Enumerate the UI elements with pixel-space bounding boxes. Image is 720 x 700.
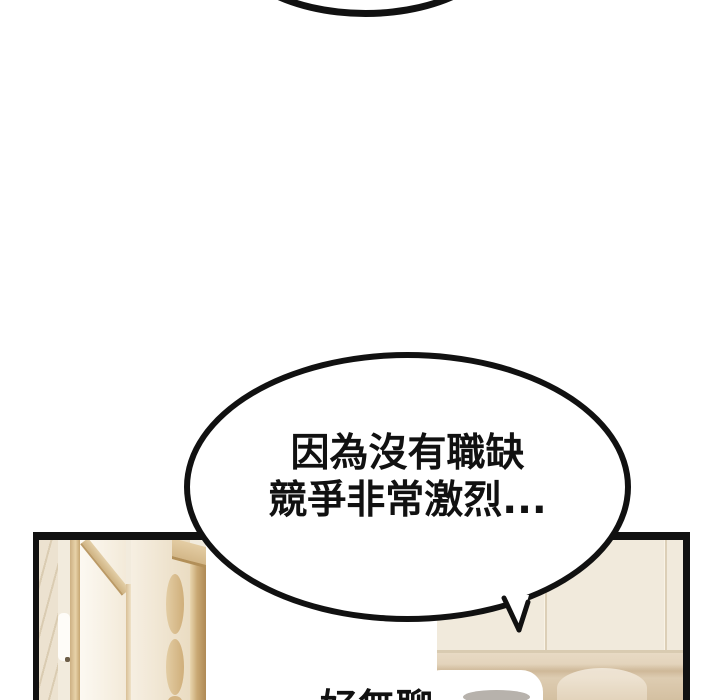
toilet-shadow <box>463 690 530 700</box>
speech-text-main: 因為沒有職缺 競爭非常激烈... <box>184 430 631 524</box>
speech-bubble-tail <box>495 583 545 638</box>
door-frame-strip <box>70 540 80 700</box>
wall-seam-vertical <box>664 540 667 652</box>
speech-text-partial: 好無聊 <box>320 677 434 700</box>
closet-side-edge <box>190 554 206 700</box>
door-handle <box>58 613 70 661</box>
closet-handle-dot <box>168 696 182 700</box>
closet-handle-oval <box>166 639 184 695</box>
closet-handle-oval <box>166 574 184 634</box>
tiled-wall <box>39 540 58 700</box>
comic-page: 好無聊 因為沒有職缺 競爭非常激烈... <box>0 0 720 700</box>
speech-text-line-1: 因為沒有職缺 <box>184 430 631 477</box>
toilet-tank-curve <box>557 668 647 700</box>
speech-text-line-2: 競爭非常激烈... <box>184 477 631 524</box>
speech-bubble-top-partial <box>220 0 511 17</box>
